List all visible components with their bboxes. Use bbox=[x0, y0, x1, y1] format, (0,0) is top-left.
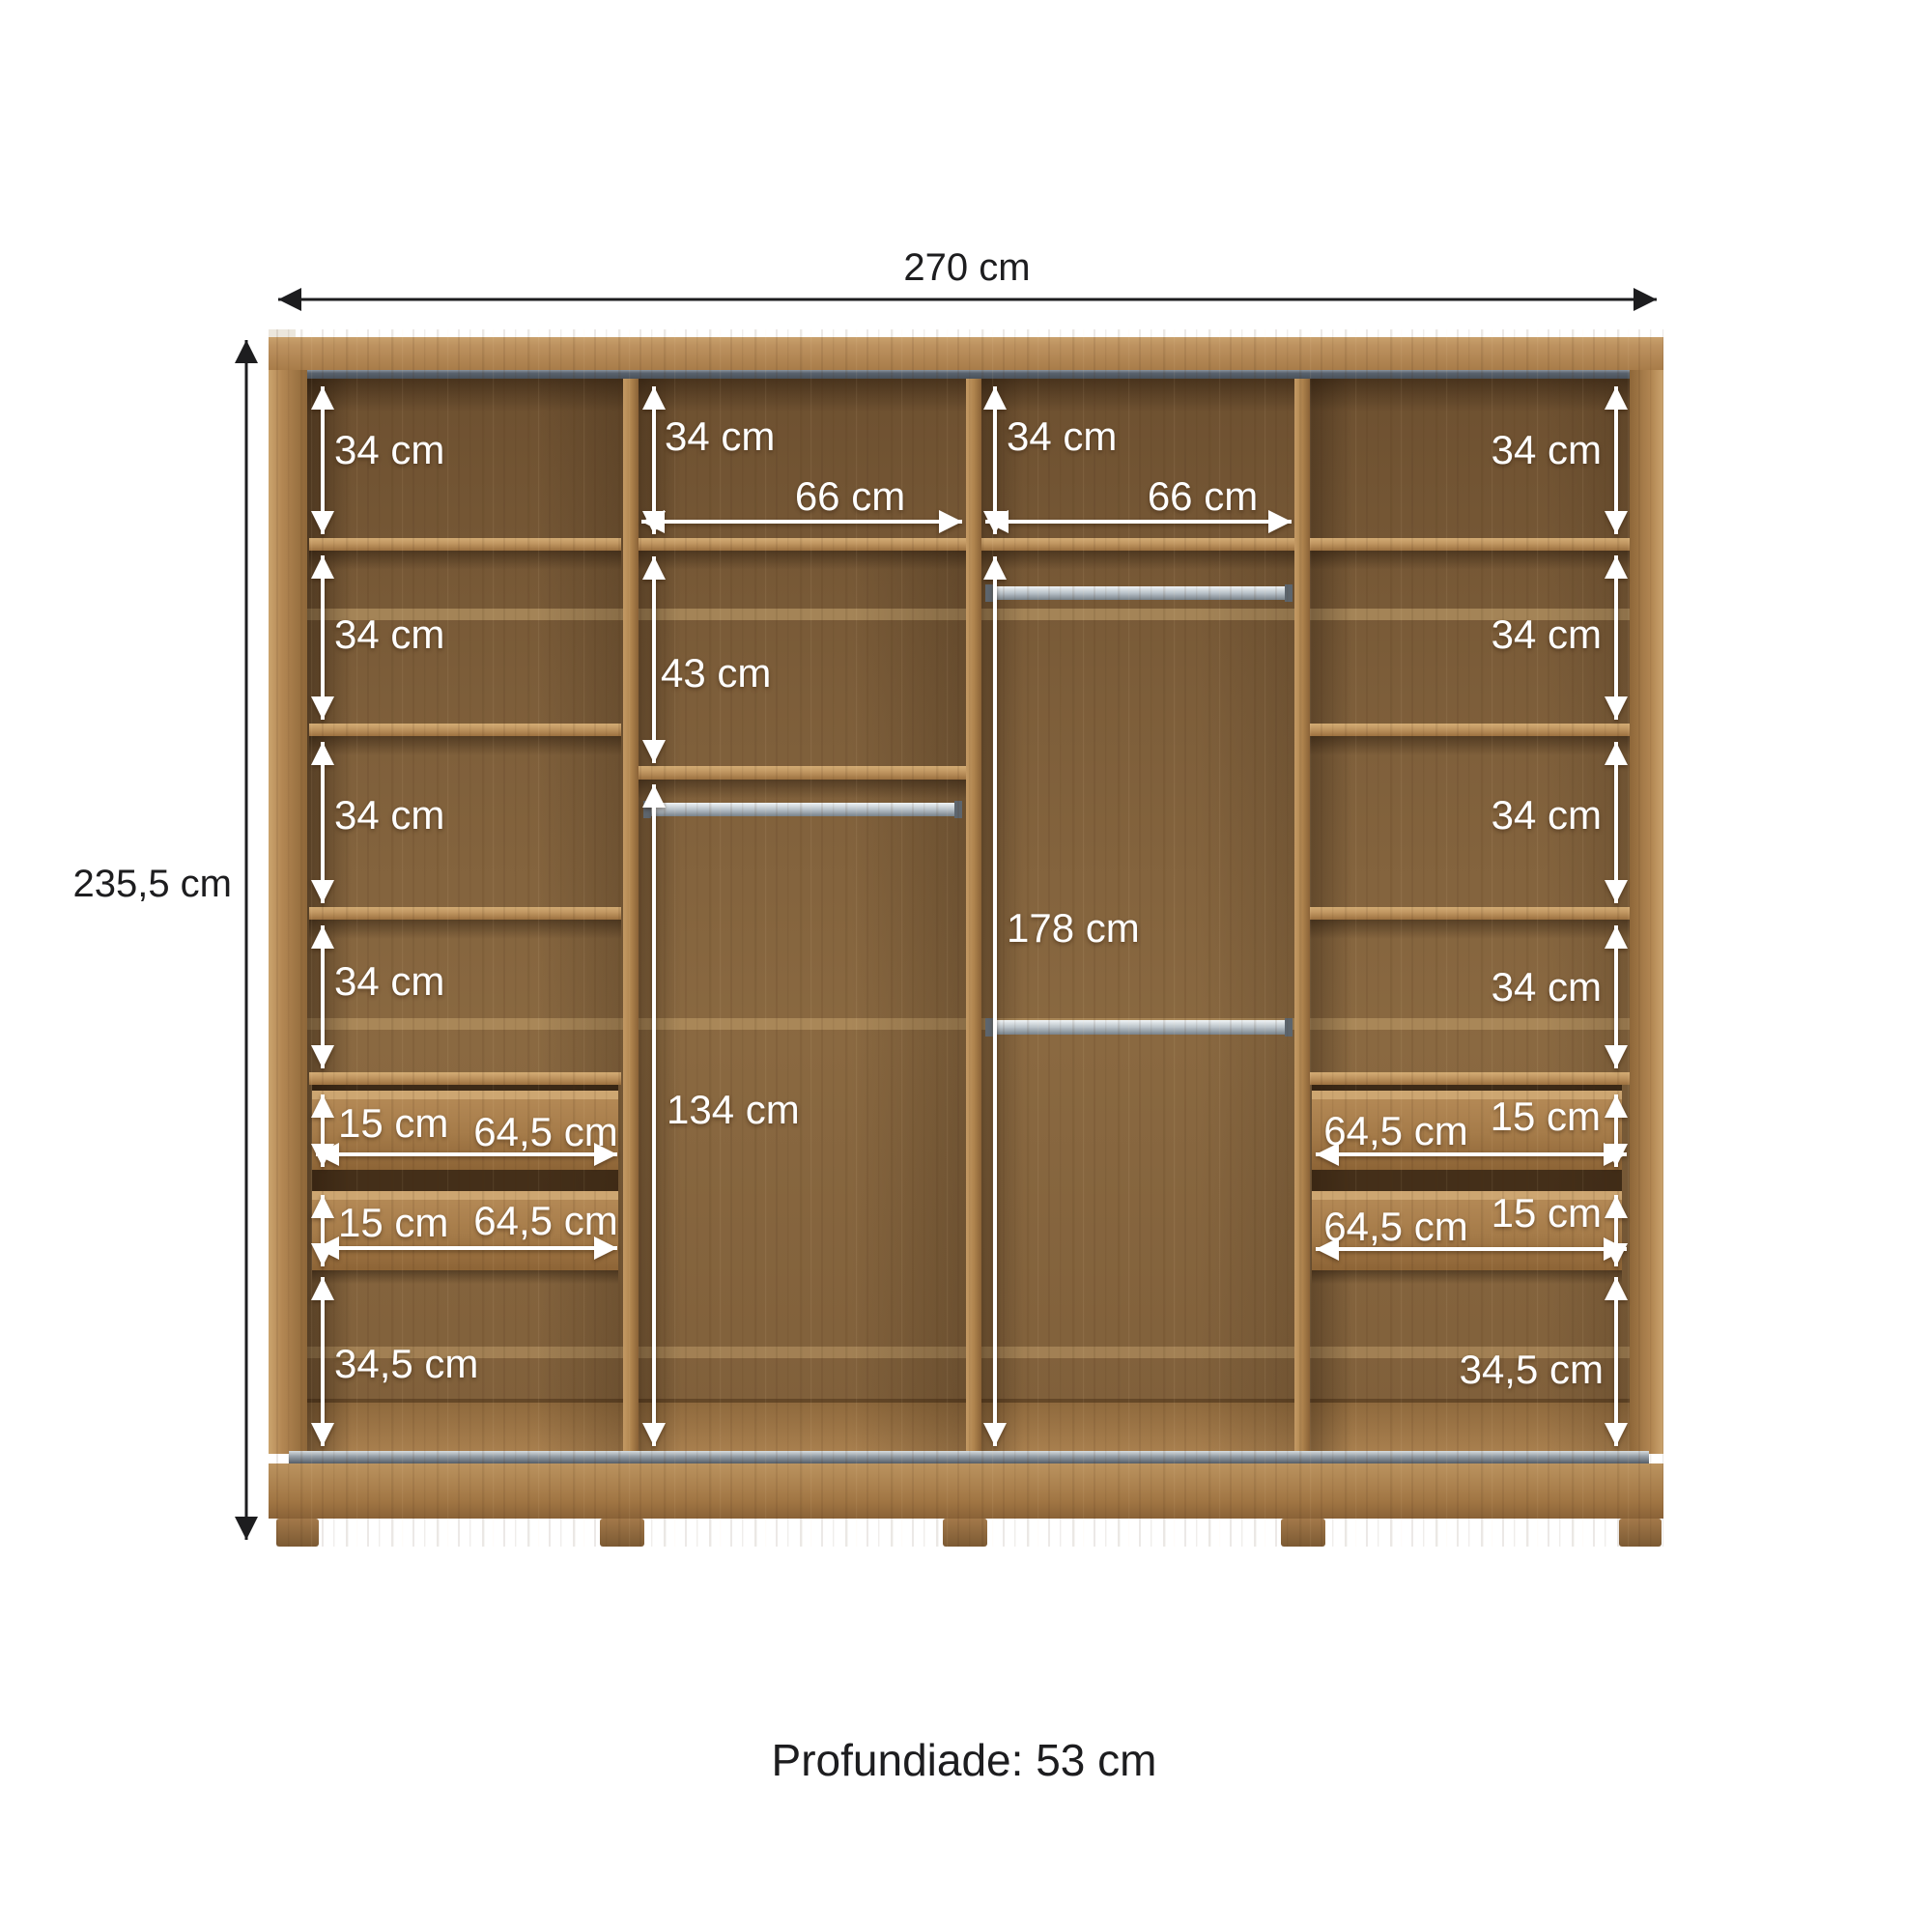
section-label: 134 cm bbox=[667, 1087, 800, 1132]
overall-width-dimension: 270 cm bbox=[278, 246, 1657, 299]
section-label: 34 cm bbox=[1492, 964, 1602, 1009]
drawer-width-label: 64,5 cm bbox=[1323, 1108, 1467, 1153]
drawer-height-label: 15 cm bbox=[338, 1100, 448, 1146]
inner-width-label: 66 cm bbox=[1148, 473, 1258, 519]
section-label: 34 cm bbox=[1492, 427, 1602, 472]
section-label: 34 cm bbox=[334, 792, 444, 838]
section-label: 34 cm bbox=[1492, 792, 1602, 838]
section-label: 178 cm bbox=[1007, 905, 1140, 951]
section-label: 43 cm bbox=[661, 650, 771, 696]
overall-height-dimension: 235,5 cm bbox=[72, 340, 246, 1540]
section-label: 34 cm bbox=[334, 427, 444, 472]
overall-height-label: 235,5 cm bbox=[72, 863, 232, 905]
wardrobe-dimension-diagram-page: 270 cm 235,5 cm Profundiade: 53 cm 34 cm… bbox=[0, 0, 1932, 1932]
wardrobe-dimension-diagram: 270 cm 235,5 cm Profundiade: 53 cm 34 cm… bbox=[0, 0, 1932, 1932]
bottom-section-label: 34,5 cm bbox=[334, 1341, 478, 1386]
section-label: 34 cm bbox=[1492, 611, 1602, 657]
drawer-width-label: 64,5 cm bbox=[473, 1198, 617, 1243]
drawer-height-label: 15 cm bbox=[1491, 1094, 1601, 1139]
depth-note-label: Profundiade: 53 cm bbox=[772, 1735, 1157, 1785]
drawer-width-label: 64,5 cm bbox=[473, 1109, 617, 1154]
drawer-width-label: 64,5 cm bbox=[1323, 1204, 1467, 1249]
drawer-height-label: 15 cm bbox=[1492, 1190, 1602, 1236]
bottom-section-label: 34,5 cm bbox=[1460, 1347, 1604, 1392]
section-label: 34 cm bbox=[334, 958, 444, 1004]
drawer-height-label: 15 cm bbox=[338, 1200, 448, 1245]
overall-width-label: 270 cm bbox=[903, 246, 1030, 289]
section-label: 34 cm bbox=[665, 413, 775, 459]
inner-width-label: 66 cm bbox=[795, 473, 905, 519]
section-label: 34 cm bbox=[1007, 413, 1117, 459]
section-label: 34 cm bbox=[334, 611, 444, 657]
